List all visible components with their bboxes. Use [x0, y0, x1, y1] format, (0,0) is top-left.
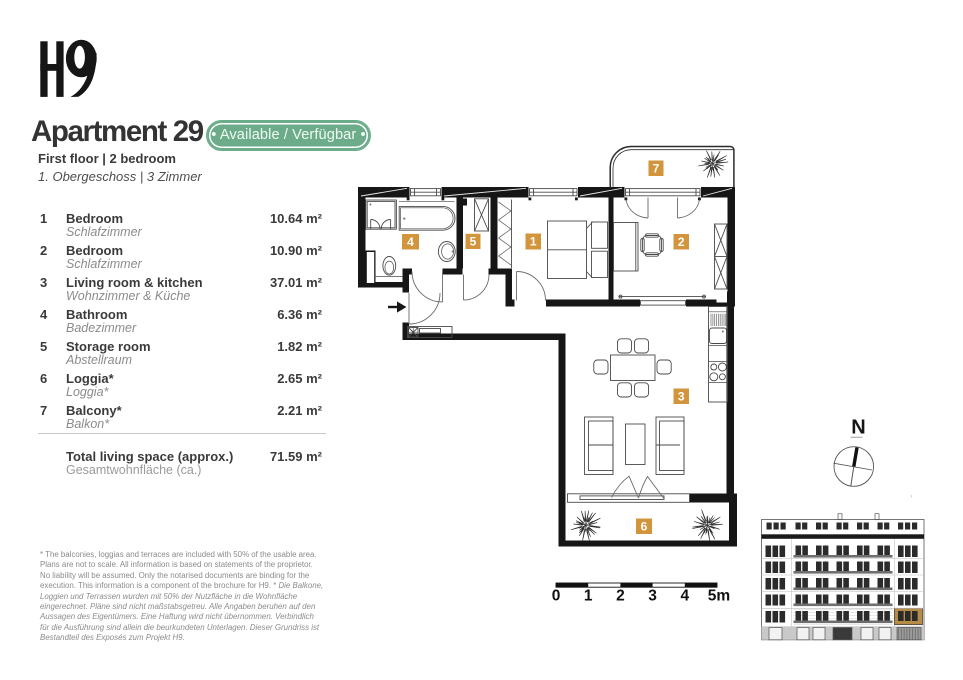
- svg-text:5m: 5m: [708, 588, 730, 605]
- svg-text:5: 5: [470, 235, 477, 249]
- svg-text:0: 0: [552, 588, 561, 605]
- svg-text:4: 4: [407, 235, 414, 249]
- svg-text:1: 1: [530, 235, 537, 249]
- svg-text:2: 2: [678, 235, 685, 249]
- svg-text:3: 3: [648, 588, 657, 605]
- svg-text:1: 1: [584, 588, 593, 605]
- svg-text:2: 2: [616, 588, 625, 605]
- svg-text:3: 3: [678, 389, 685, 403]
- svg-text:4: 4: [680, 588, 689, 605]
- svg-text:7: 7: [653, 161, 660, 175]
- svg-text:N: N: [851, 417, 865, 439]
- svg-text:6: 6: [641, 520, 648, 534]
